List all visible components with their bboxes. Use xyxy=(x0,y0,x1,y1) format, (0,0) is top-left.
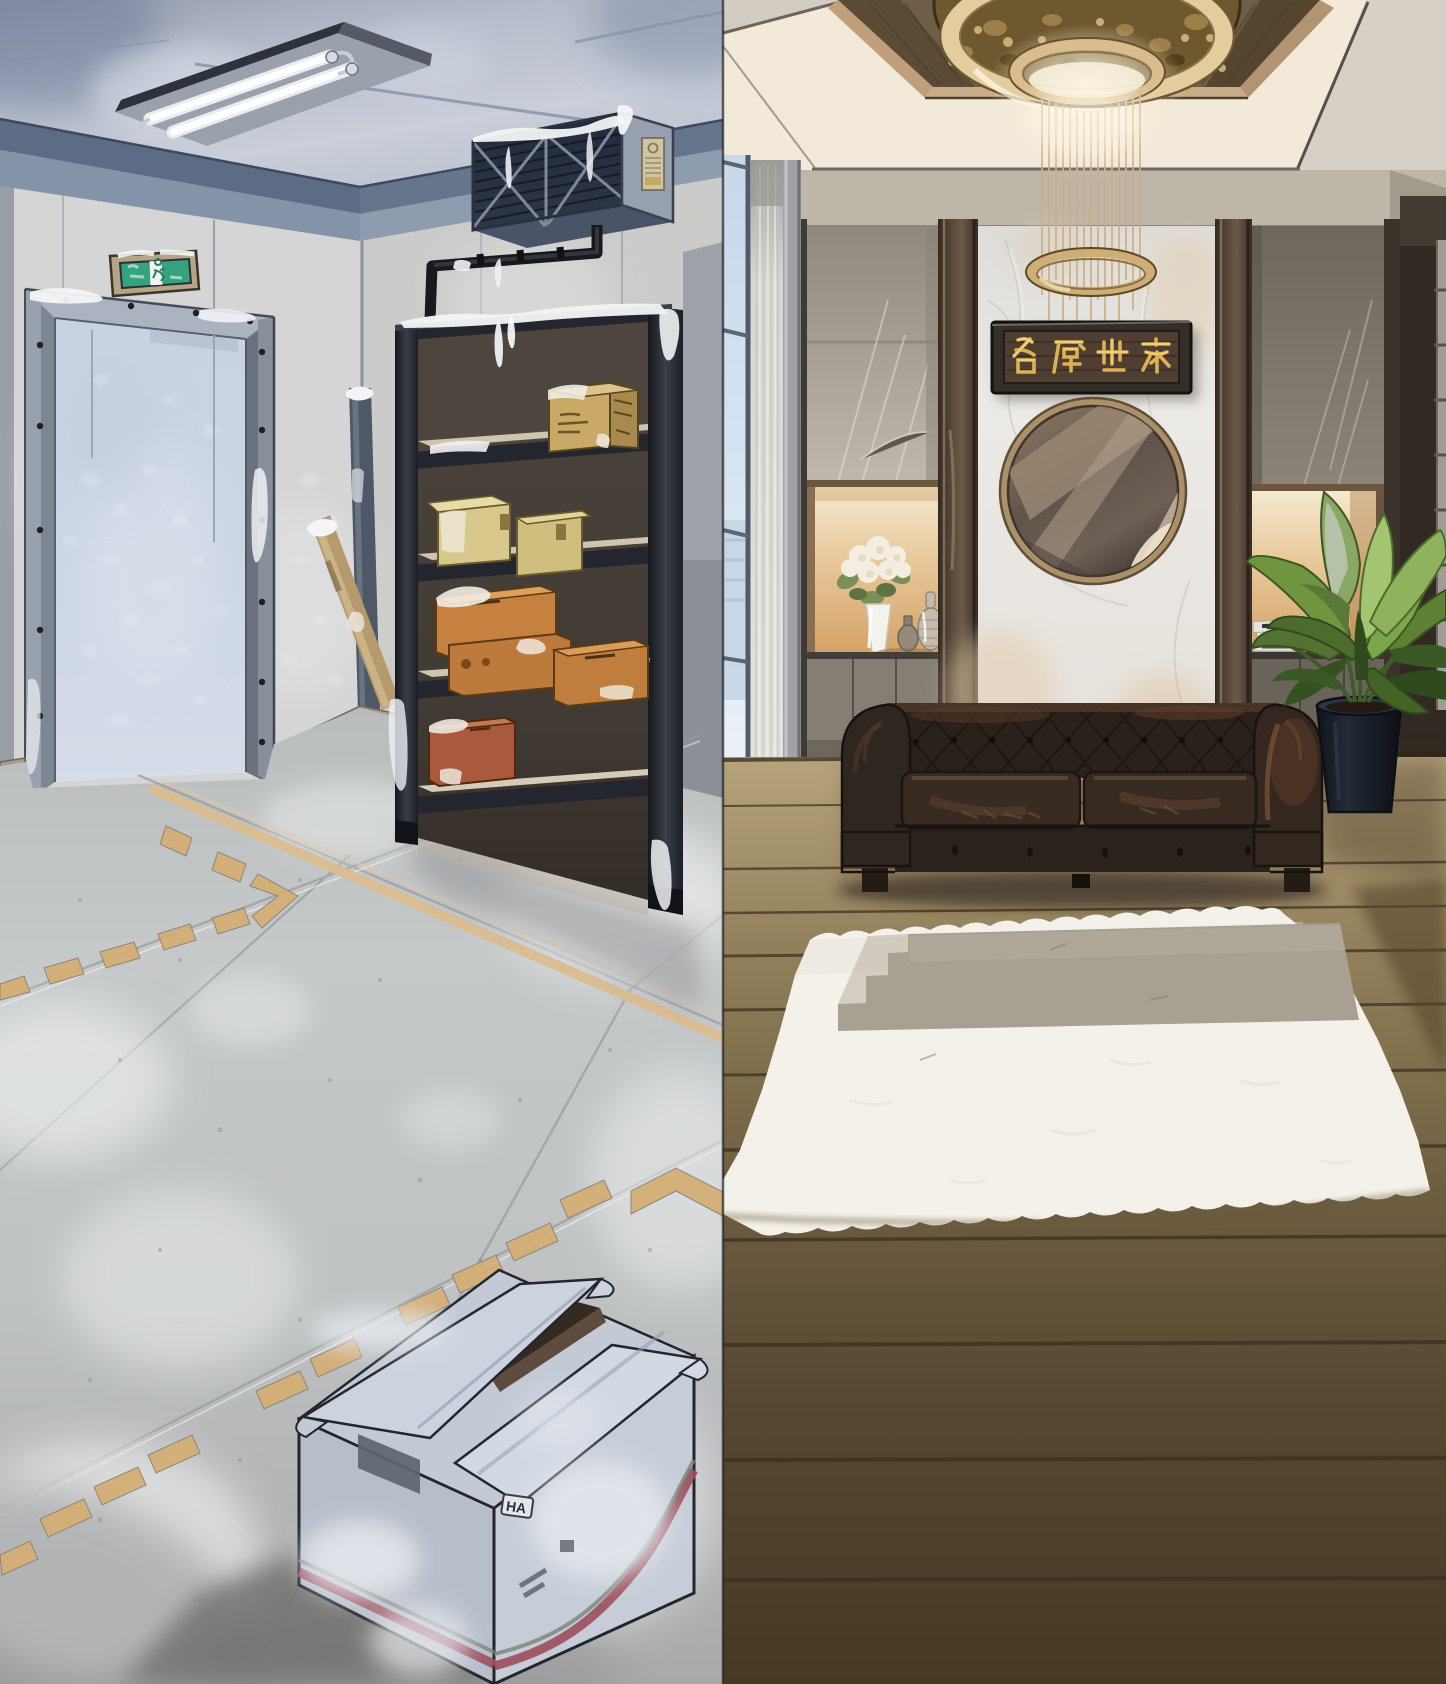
svg-text:HA: HA xyxy=(505,1498,527,1517)
